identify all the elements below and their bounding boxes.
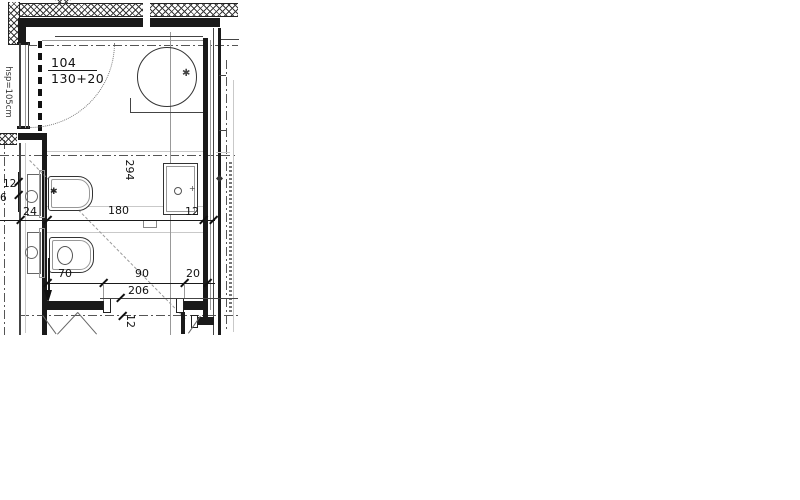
dim-label-door-total: 206: [128, 284, 149, 297]
east-wall-line-2: [213, 28, 214, 335]
insulation-hatch-top-stub: [55, 0, 71, 4]
dim-label-left-upper: 12: [3, 178, 16, 191]
washbasin-tap-icon: +: [189, 185, 196, 193]
window-frame-inner: [28, 43, 29, 128]
top-wall-right: [150, 18, 220, 27]
east-wall-cavity-line: [210, 40, 211, 310]
insulation-hatch-top-right: [150, 3, 238, 17]
micro-text-annotation: [229, 162, 232, 312]
dim-label-seg2: 90: [135, 267, 149, 280]
left-stub-wall: [18, 133, 42, 140]
dim-ext-line-2: [184, 284, 185, 299]
shower-tray-edge-h: [130, 112, 203, 113]
door-frame-right: [176, 298, 184, 313]
corridor-wall-line: [19, 143, 21, 335]
right-jamb-line: [221, 39, 239, 40]
toilet-bowl-oval: [57, 246, 73, 265]
shaft-face-line: [25, 143, 26, 333]
window-parapet-label: hsp=105cm: [0, 62, 14, 122]
tile-guide-3: [42, 232, 203, 233]
right-tick-2: [219, 130, 226, 131]
bidet-tap-icon: ✱: [50, 188, 58, 196]
east-wall: [203, 38, 208, 310]
floorplan-canvas: hsp=105cm ✱ ✱ +: [0, 0, 800, 500]
dim-label-right-wall: 12: [185, 205, 199, 218]
dim-line-1: [0, 220, 215, 221]
top-wall-left: [18, 18, 143, 27]
window-frame-outer: [19, 43, 21, 128]
right-faint-line: [233, 80, 234, 332]
top-wall-finish-line: [42, 40, 203, 41]
insulation-hatch-top-left: [20, 3, 143, 17]
axis-line-right: [226, 60, 227, 332]
insulation-hatch-left-stub: [0, 133, 17, 145]
dim-label-left-lower: 6: [0, 192, 7, 205]
washbasin-drain-circle: [174, 187, 182, 195]
pipe-circle-1: [25, 190, 38, 203]
tile-guide-1: [42, 151, 203, 152]
dim-label-seg3: 20: [186, 267, 200, 280]
axis-line-left: [4, 140, 5, 335]
right-cross-line: [216, 152, 230, 153]
shaft-box-1b: [39, 170, 45, 218]
door-tag-number: 104: [51, 56, 76, 70]
right-tick-1: [219, 75, 226, 76]
dim-label-room-width: 180: [108, 204, 129, 217]
door-frame-left: [103, 298, 111, 313]
shaft-box-2b: [39, 228, 45, 278]
dim-label-shaft: 24: [23, 205, 37, 218]
top-wall-inner-face: [55, 36, 203, 37]
shower-tray-edge-v: [130, 98, 131, 113]
niche-detail-mark: [143, 221, 157, 228]
pipe-circle-2: [25, 246, 38, 259]
dim-label-seg1: 70: [58, 267, 72, 280]
door-leaf: [181, 312, 185, 334]
entry-arrow-line: [48, 258, 50, 292]
bottom-wall-right: [184, 301, 208, 310]
window-glass-line: [25, 45, 26, 128]
door-tag-size: 130+20: [51, 72, 104, 86]
bottom-wall-left: [42, 301, 103, 310]
drain-icon: ✱: [182, 70, 190, 78]
dim-label-room-height: 294: [123, 156, 137, 184]
